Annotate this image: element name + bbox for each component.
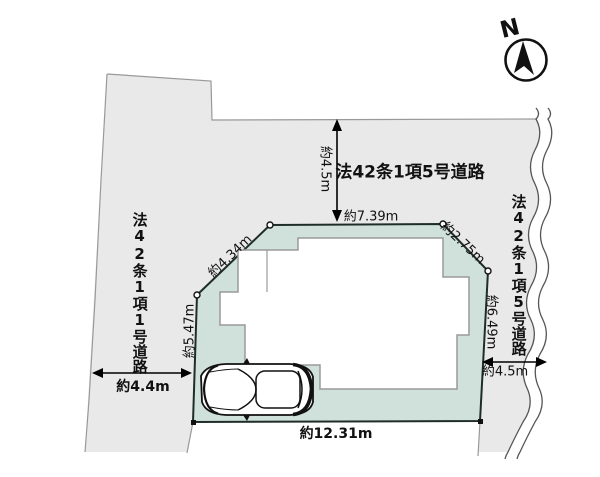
north-compass-icon	[506, 40, 547, 81]
parcel-top-edge-dim: 約7.39m	[344, 206, 399, 225]
left-road-name: 法42条1項1号道路	[131, 212, 146, 374]
parcel-left-edge-dim: 約5.47m	[179, 304, 198, 359]
right-road-name: 法42条1項5号道路	[510, 194, 525, 356]
parcel-right-edge-dim: 約6.49m	[484, 295, 503, 350]
top-road-name: 法42条1項5号道路	[335, 158, 484, 183]
left-road-width-dim: 約4.4m	[116, 376, 169, 396]
top-road-width-dim: 約4.5m	[318, 146, 337, 192]
site-plan-diagram: N 法42条1項5号道路 約4.5m 法42条1項1号道路 法42条1項5号道路…	[0, 0, 600, 477]
right-road-width-dim: 約4.5m	[482, 361, 528, 380]
car-top-view-icon	[201, 358, 313, 421]
parcel-bottom-edge-dim: 約12.31m	[300, 423, 373, 443]
